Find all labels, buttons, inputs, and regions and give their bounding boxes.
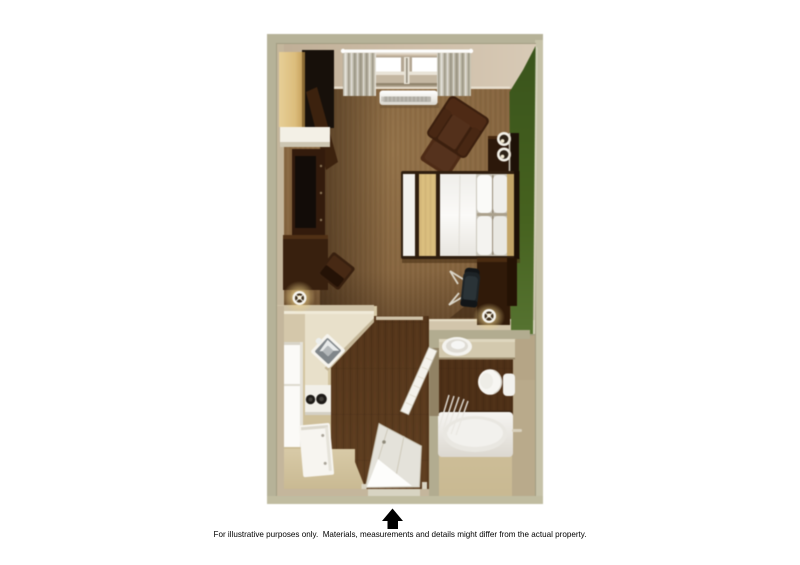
svg-text:For illustrative purposes only: For illustrative purposes only. Material… (214, 530, 587, 539)
